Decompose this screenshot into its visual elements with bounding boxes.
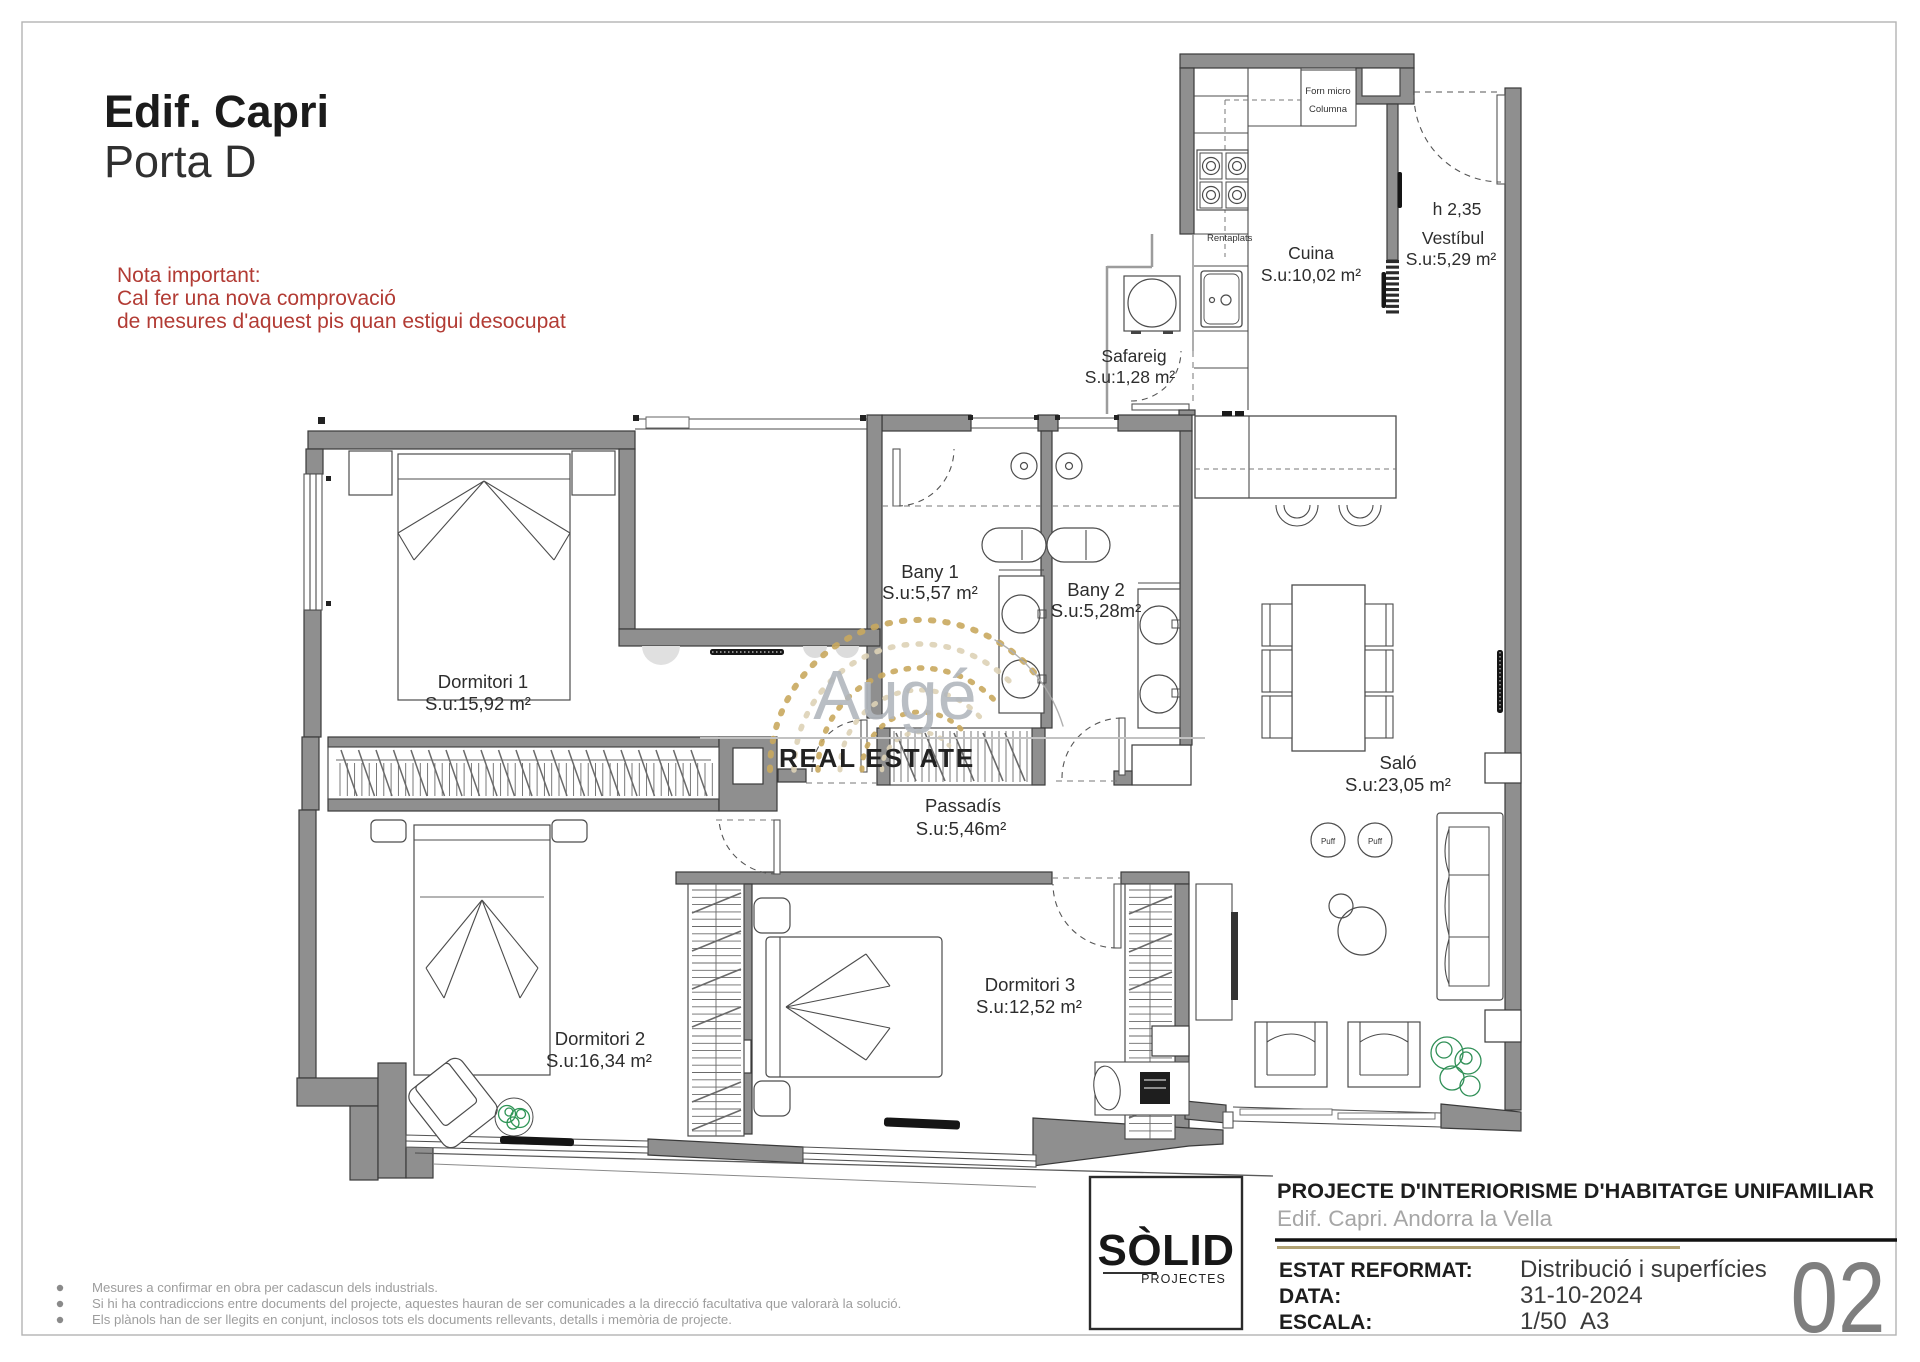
svg-text:Puff: Puff [1321, 837, 1336, 846]
svg-text:Cal fer una nova comprovació: Cal fer una nova comprovació [117, 287, 396, 310]
svg-text:Dormitori 2: Dormitori 2 [555, 1028, 645, 1049]
svg-text:Forn micro: Forn micro [1305, 86, 1350, 97]
svg-text:02: 02 [1791, 1242, 1886, 1354]
svg-text:1/50 A3: 1/50 A3 [1520, 1308, 1609, 1335]
svg-text:Porta D: Porta D [104, 136, 257, 187]
svg-text:Bany 1: Bany 1 [901, 561, 959, 582]
svg-text:Si hi ha contradiccions entre: Si hi ha contradiccions entre documents … [92, 1296, 901, 1311]
svg-text:S.u:12,52 m²: S.u:12,52 m² [976, 996, 1082, 1017]
svg-text:ESTAT REFORMAT:: ESTAT REFORMAT: [1279, 1259, 1473, 1282]
svg-text:Dormitori 3: Dormitori 3 [985, 974, 1075, 995]
svg-text:PROJECTES: PROJECTES [1141, 1272, 1226, 1286]
svg-text:Distribució i superfícies: Distribució i superfícies [1520, 1256, 1767, 1283]
svg-text:Passadís: Passadís [925, 795, 1001, 816]
svg-text:S.u:10,02 m²: S.u:10,02 m² [1261, 265, 1361, 285]
svg-text:S.u:5,46m²: S.u:5,46m² [916, 818, 1007, 839]
svg-text:31-10-2024: 31-10-2024 [1520, 1282, 1643, 1309]
svg-text:S.u:16,34 m²: S.u:16,34 m² [546, 1050, 652, 1071]
svg-text:SÒLID: SÒLID [1098, 1225, 1235, 1275]
svg-text:ESCALA:: ESCALA: [1279, 1311, 1372, 1334]
svg-text:Saló: Saló [1379, 752, 1416, 773]
svg-text:Safareig: Safareig [1101, 346, 1166, 366]
svg-text:Edif. Capri. Andorra la Vella: Edif. Capri. Andorra la Vella [1277, 1206, 1553, 1231]
svg-text:Augé: Augé [813, 656, 976, 734]
svg-text:Mesures a confirmar en obra pe: Mesures a confirmar en obra per cadascun… [92, 1280, 438, 1295]
svg-text:S.u:23,05 m²: S.u:23,05 m² [1345, 774, 1451, 795]
svg-text:Els plànols han de ser llegits: Els plànols han de ser llegits en conjun… [92, 1312, 732, 1327]
svg-text:Dormitori 1: Dormitori 1 [438, 671, 528, 692]
svg-text:Rentaplats: Rentaplats [1207, 233, 1253, 244]
svg-text:S.u:1,28 m²: S.u:1,28 m² [1085, 367, 1176, 387]
svg-text:de mesures d'aquest pis quan e: de mesures d'aquest pis quan estigui des… [117, 310, 566, 333]
svg-text:Cuina: Cuina [1288, 243, 1334, 263]
svg-text:Edif. Capri: Edif. Capri [104, 86, 329, 137]
svg-text:Bany 2: Bany 2 [1067, 579, 1125, 600]
svg-text:h 2,35: h 2,35 [1433, 199, 1482, 219]
svg-text:Nota important:: Nota important: [117, 264, 261, 287]
svg-text:S.u:5,57 m²: S.u:5,57 m² [882, 582, 978, 603]
svg-text:REAL ESTATE: REAL ESTATE [779, 743, 975, 773]
svg-text:DATA:: DATA: [1279, 1285, 1341, 1308]
svg-text:S.u:5,28m²: S.u:5,28m² [1051, 600, 1142, 621]
svg-text:Puff: Puff [1368, 837, 1383, 846]
svg-text:Columna: Columna [1309, 104, 1348, 115]
svg-text:S.u:5,29 m²: S.u:5,29 m² [1406, 249, 1497, 269]
svg-text:Vestíbul: Vestíbul [1422, 228, 1484, 248]
svg-text:S.u:15,92 m²: S.u:15,92 m² [425, 693, 531, 714]
svg-text:PROJECTE D'INTERIORISME D'HABI: PROJECTE D'INTERIORISME D'HABITATGE UNIF… [1277, 1179, 1874, 1203]
